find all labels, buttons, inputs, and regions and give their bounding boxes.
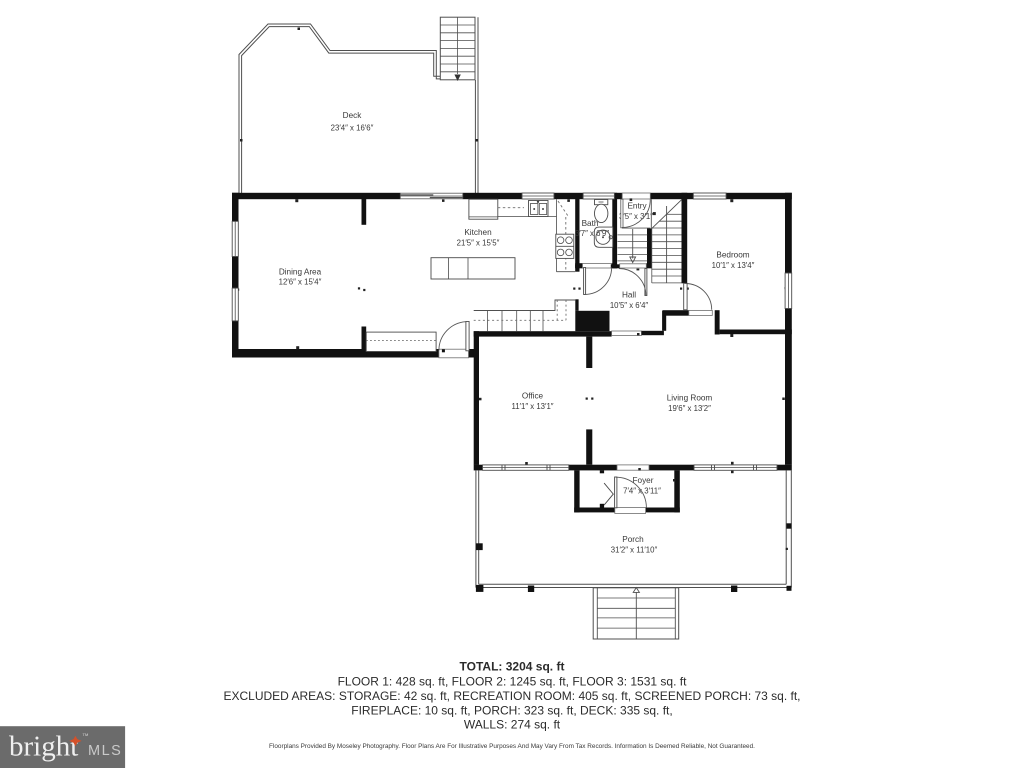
- svg-text:TM: TM: [83, 732, 89, 737]
- svg-text:MLS: MLS: [88, 743, 122, 759]
- svg-text:bright: bright: [9, 731, 78, 763]
- svg-text:Deck: Deck: [343, 111, 363, 120]
- svg-text:3′5″ x 3′1″: 3′5″ x 3′1″: [619, 212, 653, 221]
- svg-text:3′7″ x 6′9″: 3′7″ x 6′9″: [575, 229, 609, 238]
- svg-text:Kitchen: Kitchen: [464, 228, 492, 237]
- svg-text:23′4″ x 16′6″: 23′4″ x 16′6″: [331, 124, 374, 133]
- svg-text:19′6″ x 13′2″: 19′6″ x 13′2″: [668, 404, 711, 413]
- svg-text:Foyer: Foyer: [633, 476, 654, 485]
- svg-text:Dining Area: Dining Area: [279, 268, 322, 277]
- svg-text:12′6″ x 15′4″: 12′6″ x 15′4″: [279, 278, 322, 287]
- svg-text:Porch: Porch: [622, 535, 644, 544]
- svg-text:Entry: Entry: [627, 202, 647, 211]
- svg-text:WALLS: 274 sq. ft: WALLS: 274 sq. ft: [464, 718, 561, 732]
- svg-text:11′1″ x 13′1″: 11′1″ x 13′1″: [511, 402, 553, 411]
- svg-text:31′2″ x 11′10″: 31′2″ x 11′10″: [611, 546, 658, 555]
- svg-text:Floorplans Provided By Moseley: Floorplans Provided By Moseley Photograp…: [269, 743, 755, 750]
- svg-text:10′5″ x 6′4″: 10′5″ x 6′4″: [610, 301, 649, 310]
- svg-text:7′4″ x 3′11″: 7′4″ x 3′11″: [623, 487, 661, 496]
- svg-text:Bath: Bath: [582, 219, 599, 228]
- svg-text:EXCLUDED AREAS: STORAGE: 42 sq: EXCLUDED AREAS: STORAGE: 42 sq. ft, RECR…: [223, 689, 800, 703]
- svg-text:Bedroom: Bedroom: [716, 251, 749, 260]
- svg-text:21′5″ x 15′5″: 21′5″ x 15′5″: [457, 239, 500, 248]
- svg-text:Office: Office: [522, 392, 544, 401]
- svg-text:FLOOR 1: 428 sq. ft, FLOOR 2:: FLOOR 1: 428 sq. ft, FLOOR 2: 1245 sq. f…: [338, 675, 687, 689]
- svg-text:TOTAL: 3204 sq. ft: TOTAL: 3204 sq. ft: [460, 660, 565, 674]
- svg-text:FIREPLACE: 10 sq. ft, PORCH: 3: FIREPLACE: 10 sq. ft, PORCH: 323 sq. ft,…: [351, 704, 672, 718]
- svg-text:10′1″ x 13′4″: 10′1″ x 13′4″: [712, 261, 755, 270]
- svg-text:Living Room: Living Room: [667, 394, 713, 403]
- svg-text:Hall: Hall: [622, 291, 636, 300]
